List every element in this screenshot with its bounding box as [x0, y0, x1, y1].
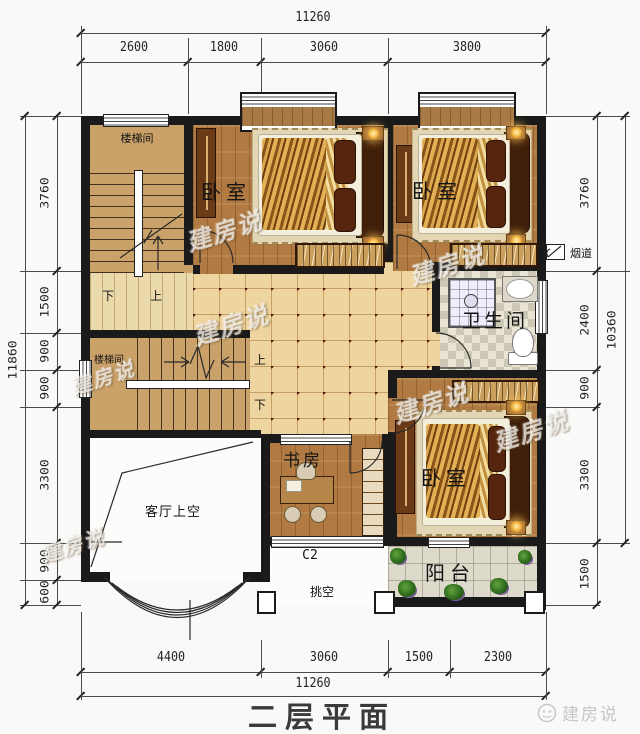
wall-bedroom1-bottom	[193, 265, 200, 274]
dim-line	[597, 116, 598, 605]
room-label-bedroom-top-right: 卧室	[409, 175, 465, 204]
bay-window-1	[240, 92, 337, 132]
dim-ext	[540, 605, 600, 606]
wall-exterior-left	[81, 116, 90, 582]
brand-logo-text: 建房说	[562, 700, 619, 725]
dim-bottom-seg4: 2300	[471, 650, 525, 665]
room-label-balcony: 阳台	[420, 557, 480, 586]
dim-line	[81, 62, 546, 63]
wall-balcony-top	[468, 537, 537, 546]
bay-sill	[242, 107, 335, 126]
plant	[390, 548, 406, 564]
dim-left-seg4: 900	[39, 358, 52, 418]
stair2-up-label: 上	[252, 351, 268, 368]
dim-ext	[261, 38, 262, 92]
room-label-stairwell-top: 楼梯间	[107, 130, 167, 146]
dim-ext	[540, 271, 630, 272]
dim-ext	[450, 640, 451, 678]
pillow	[334, 140, 356, 184]
column	[257, 591, 276, 614]
balcony-door-opening	[428, 537, 470, 548]
pillow	[334, 188, 356, 232]
stair-handrail	[134, 170, 143, 277]
column	[524, 591, 545, 614]
dim-top-total: 11260	[286, 10, 340, 25]
dim-bottom-seg3: 1500	[392, 650, 446, 665]
plan-title: 二层平面	[222, 694, 422, 734]
stair2-down-label: 下	[252, 396, 268, 413]
pillow	[488, 474, 506, 520]
bookshelf	[362, 448, 384, 536]
dim-ext	[188, 38, 189, 114]
flue-label: 烟道	[566, 245, 596, 261]
dim-bottom-seg2: 3060	[297, 650, 351, 665]
stair1-up-label: 上	[148, 287, 164, 304]
dim-ext	[388, 640, 389, 678]
dim-ext	[546, 612, 547, 700]
room-label-bedroom-top-mid: 卧室	[198, 176, 254, 205]
dim-ext	[81, 26, 82, 114]
dim-top-seg1: 2600	[107, 40, 161, 55]
lamp	[511, 521, 522, 532]
bay-glass	[420, 94, 514, 107]
stair-window	[103, 114, 169, 127]
plant	[490, 578, 508, 594]
study-partition-window	[280, 434, 352, 445]
room-label-bedroom-bottom-right: 卧室	[418, 462, 474, 491]
column	[374, 591, 395, 614]
dim-line	[81, 672, 546, 673]
plant	[444, 584, 464, 600]
room-label-living-void: 客厅上空	[138, 501, 208, 520]
dim-right-seg3: 900	[579, 358, 592, 418]
dim-ext	[388, 38, 389, 114]
dim-right-seg2: 2400	[579, 290, 592, 350]
dim-ext	[81, 612, 82, 700]
dim-left-seg7: 600	[39, 562, 52, 622]
lamp	[511, 401, 522, 412]
wall-study-left	[261, 434, 270, 582]
floor-plan-canvas: 11260 2600 1800 3060 3800 4400 3060 1500…	[0, 0, 640, 734]
dim-top-seg3: 3060	[297, 40, 351, 55]
guest-chair	[310, 506, 327, 523]
dim-bottom-seg1: 4400	[144, 650, 198, 665]
plant	[518, 550, 532, 564]
dim-line	[625, 116, 626, 544]
cantilever-label: 挑空	[302, 583, 342, 600]
dim-line	[25, 116, 26, 605]
guest-chair	[284, 506, 301, 523]
bay-glass	[242, 94, 335, 107]
bay-sill	[420, 107, 514, 126]
dim-line	[57, 116, 58, 605]
dim-line	[81, 33, 546, 34]
dim-ext	[546, 26, 547, 114]
brand-logo-icon	[536, 702, 558, 724]
pillow	[486, 140, 506, 182]
sink-basin	[506, 279, 534, 299]
balcony-railing	[374, 597, 546, 607]
dim-left-seg1: 3760	[39, 163, 52, 223]
window-code-label: C2	[295, 548, 325, 563]
dim-right-total: 10360	[606, 300, 619, 360]
lamp	[368, 128, 379, 139]
dim-left-total: 11860	[7, 330, 20, 390]
bay-window-2	[418, 92, 516, 132]
dim-bottom-total: 11260	[286, 676, 340, 691]
dim-right-seg4: 3300	[579, 445, 592, 505]
wall-balcony-top	[388, 537, 428, 546]
stair1-down-label: 下	[100, 287, 116, 304]
clothes-rack	[295, 243, 385, 268]
dim-left-seg5: 3300	[39, 445, 52, 505]
wall-exterior-right	[537, 116, 546, 610]
dim-top-seg4: 3800	[440, 40, 494, 55]
brand-logo: 建房说	[536, 700, 619, 725]
dim-ext	[261, 640, 262, 678]
wall-bay-stub-left	[81, 572, 110, 582]
plant	[398, 580, 416, 597]
dim-ext	[20, 116, 81, 117]
stair-handrail	[126, 380, 250, 389]
dim-ext	[540, 116, 630, 117]
dim-right-seg1: 3760	[579, 163, 592, 223]
bay-window-arcs	[104, 577, 250, 618]
lamp	[511, 127, 522, 138]
wardrobe	[395, 420, 415, 514]
wall-bay-stub-right	[243, 572, 270, 582]
wall-stair2-bottom	[81, 430, 261, 438]
study-window-c2	[271, 536, 384, 548]
dim-top-seg2: 1800	[197, 40, 251, 55]
desk-papers	[286, 480, 302, 492]
room-label-study: 书房	[278, 446, 328, 471]
wall-study-bottom	[261, 537, 271, 546]
dim-right-seg5: 1500	[579, 544, 592, 604]
bed-blanket	[262, 138, 326, 230]
flue-symbol	[546, 244, 565, 260]
room-label-bathroom: 卫生间	[450, 306, 540, 333]
pillow	[486, 186, 506, 228]
